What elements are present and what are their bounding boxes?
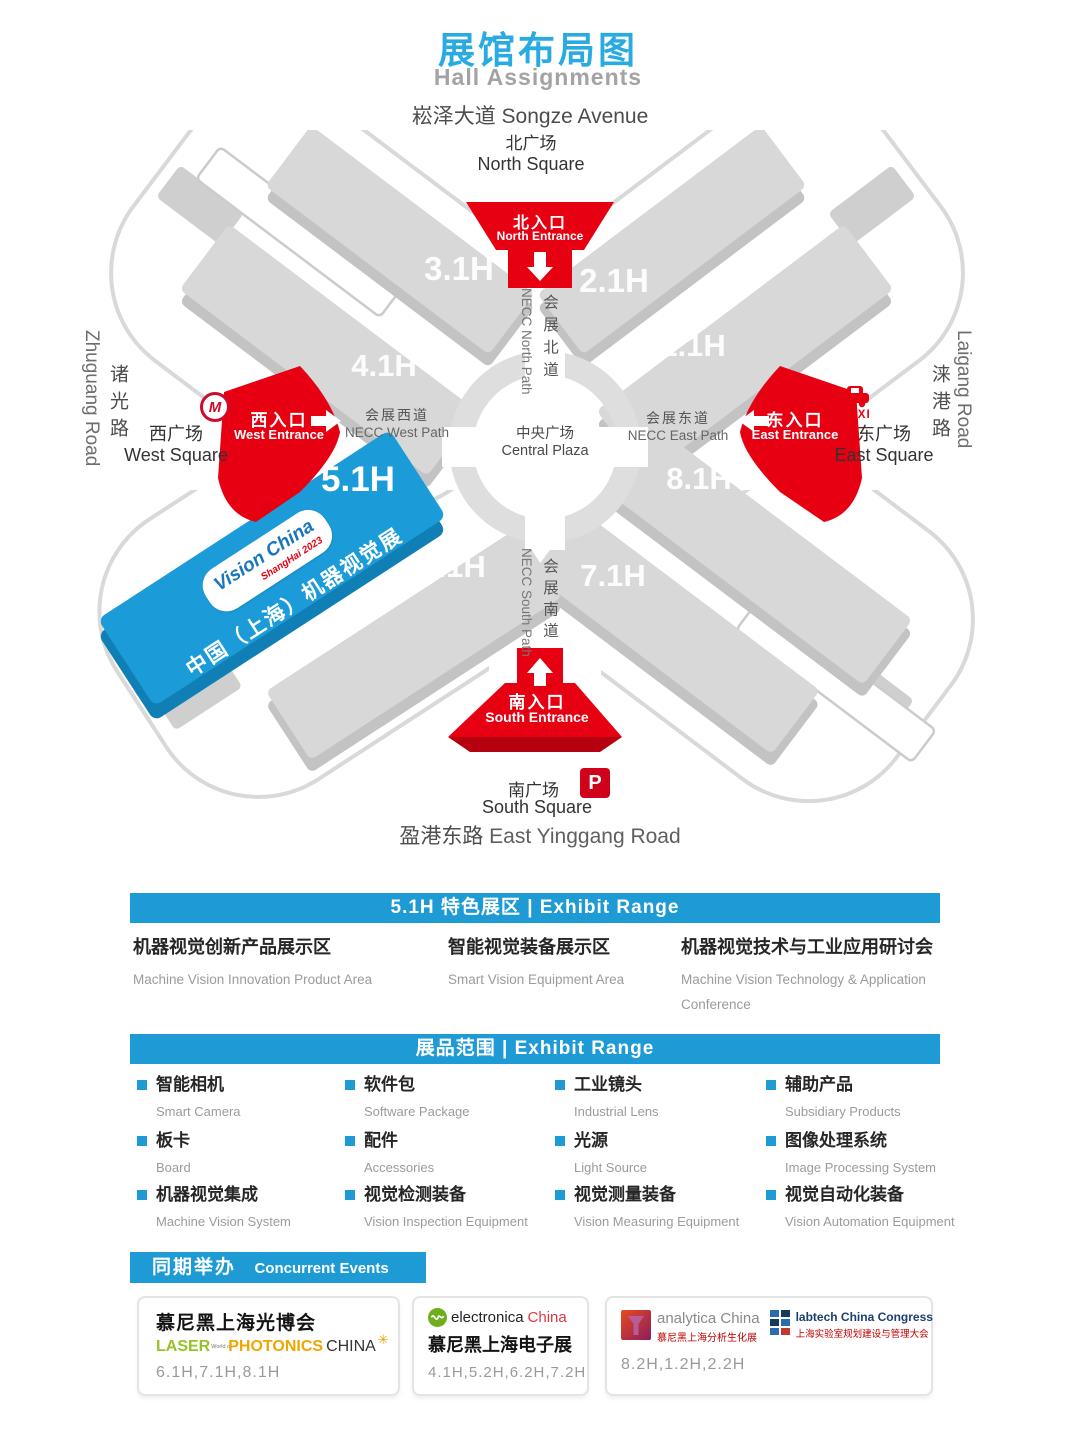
west-square-en: West Square [124, 445, 228, 466]
necc-south-path-zh: 会展南道 [538, 558, 560, 644]
exhibit-item-en: Machine Vision System [156, 1214, 291, 1229]
necc-east-path-label: 会展东道 NECC East Path [628, 410, 729, 444]
east-entrance-en: East Entrance [752, 427, 839, 442]
necc-north-path-en: NECC North Path [519, 288, 534, 420]
featured-item-en: Smart Vision Equipment Area [448, 967, 678, 992]
exhibit-item-en: Vision Automation Equipment [785, 1214, 955, 1229]
logo-world-of: World of [211, 1344, 227, 1350]
hall-label-3-1h: 3.1H [424, 250, 494, 288]
bullet-icon [345, 1190, 355, 1200]
parking-icon: P [580, 768, 610, 798]
logo-china: CHINA [326, 1338, 376, 1356]
central-plaza-label: 中央广场 Central Plaza [501, 426, 588, 460]
event-card-analytica-labtech: analytica China 慕尼黑上海分析生化展 labtech China… [605, 1296, 933, 1396]
event-card-laser-photonics: 慕尼黑上海光博会 LASER World of PHOTONICS CHINA … [137, 1296, 400, 1396]
labtech-logo-icon [770, 1310, 790, 1336]
south-entrance-en: South Entrance [485, 709, 588, 725]
analytica-logo-text: analytica China 慕尼黑上海分析生化展 [657, 1310, 760, 1344]
exhibit-item: 视觉自动化装备 Vision Automation Equipment [766, 1180, 955, 1229]
yinggang-road-label: 盈港东路 East Yinggang Road [399, 820, 680, 850]
featured-item: 机器视觉创新产品展示区 Machine Vision Innovation Pr… [133, 933, 438, 992]
concurrent-banner-en: Concurrent Events [254, 1260, 388, 1277]
necc-east-path-zh: 会展东道 [628, 410, 729, 427]
exhibit-item-en: Subsidiary Products [785, 1104, 901, 1119]
metro-icon-letter: M [209, 399, 222, 416]
songze-avenue-zh: 崧泽大道 [412, 105, 496, 128]
event-title-zh: 慕尼黑上海电子展 [428, 1331, 575, 1357]
exhibit-item: 辅助产品 Subsidiary Products [766, 1070, 901, 1119]
featured-item: 智能视觉装备展示区 Smart Vision Equipment Area [448, 933, 678, 992]
bullet-icon [137, 1136, 147, 1146]
electronica-wave-icon [428, 1308, 447, 1327]
hall-label-2-1h: 2.1H [579, 262, 649, 300]
metro-icon: M [200, 392, 230, 422]
yinggang-road-en: East Yinggang Road [489, 825, 680, 848]
bullet-icon [555, 1080, 565, 1090]
bullet-icon [345, 1136, 355, 1146]
electronica-logo: electronica China [428, 1308, 575, 1327]
exhibit-item-en: Accessories [364, 1160, 434, 1175]
bullet-icon [555, 1190, 565, 1200]
north-square-zh: 北广场 [477, 134, 584, 154]
exhibit-item-en: Board [156, 1160, 191, 1175]
east-square-zh: 东广场 [834, 424, 933, 445]
bullet-icon [345, 1080, 355, 1090]
west-entrance-en: West Entrance [234, 427, 324, 442]
concurrent-events-banner: 同期举办 Concurrent Events [130, 1252, 426, 1283]
page-subtitle: Hall Assignments [434, 64, 642, 91]
bullet-icon [137, 1080, 147, 1090]
laser-photonics-logo: LASER World of PHOTONICS CHINA ✳ [156, 1338, 386, 1356]
featured-item-en: Machine Vision Innovation Product Area [133, 967, 438, 992]
south-square-en: South Square [482, 797, 592, 818]
songze-avenue-label: 崧泽大道 Songze Avenue [412, 100, 649, 130]
exhibit-item: 工业镜头 Industrial Lens [555, 1070, 659, 1119]
bullet-icon [766, 1136, 776, 1146]
featured-item-zh: 机器视觉创新产品展示区 [133, 933, 438, 959]
exhibit-item-zh: 辅助产品 [785, 1075, 853, 1094]
exhibit-section-header: 展品范围 | Exhibit Range [130, 1034, 940, 1064]
exhibit-item: 视觉测量装备 Vision Measuring Equipment [555, 1180, 739, 1229]
exhibit-item-zh: 视觉检测装备 [364, 1185, 466, 1204]
concurrent-banner-zh: 同期举办 [152, 1257, 236, 1278]
exhibit-item: 光源 Light Source [555, 1126, 647, 1175]
exhibit-item-zh: 视觉自动化装备 [785, 1185, 904, 1204]
exhibit-item: 图像处理系统 Image Processing System [766, 1126, 936, 1175]
necc-north-path-zh: 会展北道 [538, 294, 560, 384]
logo-electronica-china: China [528, 1309, 567, 1326]
logo-laser: LASER [156, 1338, 210, 1356]
analytica-labtech-logos: analytica China 慕尼黑上海分析生化展 labtech China… [621, 1310, 921, 1344]
event-halls: 4.1H,5.2H,6.2H,7.2H [428, 1364, 575, 1381]
north-square-en: North Square [477, 154, 584, 174]
central-plaza-zh: 中央广场 [501, 426, 588, 443]
starburst-icon: ✳ [378, 1332, 389, 1348]
west-square-zh: 西广场 [124, 424, 228, 445]
analytica-logo-icon [621, 1310, 651, 1340]
exhibit-item-en: Software Package [364, 1104, 470, 1119]
exhibit-item-zh: 板卡 [156, 1131, 190, 1150]
featured-item-zh: 机器视觉技术与工业应用研讨会 [681, 933, 943, 959]
featured-item-en: Machine Vision Technology & Application … [681, 967, 943, 1017]
event-halls: 6.1H,7.1H,8.1H [156, 1364, 386, 1382]
exhibit-item: 视觉检测装备 Vision Inspection Equipment [345, 1180, 528, 1229]
exhibit-item-en: Industrial Lens [574, 1104, 659, 1119]
event-card-electronica: electronica China 慕尼黑上海电子展 4.1H,5.2H,6.2… [412, 1296, 589, 1396]
exhibit-item: 板卡 Board [137, 1126, 191, 1175]
featured-section-header: 5.1H 特色展区 | Exhibit Range [130, 893, 940, 923]
west-square-label: 西广场 West Square [124, 424, 228, 466]
logo-electronica: electronica [451, 1309, 524, 1326]
exhibit-item-zh: 光源 [574, 1131, 608, 1150]
east-square-label: 东广场 East Square [834, 424, 933, 466]
analytica-sub: 慕尼黑上海分析生化展 [657, 1329, 760, 1344]
exhibit-item: 软件包 Software Package [345, 1070, 470, 1119]
yinggang-road-zh: 盈港东路 [399, 825, 483, 848]
exhibit-item-en: Smart Camera [156, 1104, 241, 1119]
featured-item-zh: 智能视觉装备展示区 [448, 933, 678, 959]
labtech-sub: 上海实验室规划建设与管理大会 [796, 1326, 933, 1340]
featured-item: 机器视觉技术与工业应用研讨会 Machine Vision Technology… [681, 933, 943, 1017]
songze-avenue-en: Songze Avenue [502, 105, 649, 128]
exhibit-item-en: Vision Inspection Equipment [364, 1214, 528, 1229]
logo-photonics: PHOTONICS [228, 1338, 323, 1356]
exhibit-item-zh: 软件包 [364, 1075, 415, 1094]
parking-icon-letter: P [588, 772, 601, 795]
bullet-icon [555, 1136, 565, 1146]
bullet-icon [766, 1190, 776, 1200]
central-plaza-en: Central Plaza [501, 443, 588, 460]
exhibit-item-zh: 视觉测量装备 [574, 1185, 676, 1204]
analytica-name: analytica China [657, 1310, 760, 1327]
bullet-icon [766, 1080, 776, 1090]
exhibit-item-zh: 工业镜头 [574, 1075, 642, 1094]
exhibit-item: 机器视觉集成 Machine Vision System [137, 1180, 291, 1229]
exhibit-item-en: Light Source [574, 1160, 647, 1175]
exhibit-item: 配件 Accessories [345, 1126, 434, 1175]
exhibit-item-zh: 机器视觉集成 [156, 1185, 258, 1204]
necc-east-path-en: NECC East Path [628, 427, 729, 444]
north-square-label: 北广场 North Square [477, 134, 584, 174]
exhibit-item-zh: 智能相机 [156, 1075, 224, 1094]
labtech-name: labtech China Congress [796, 1310, 933, 1324]
exhibit-item-zh: 配件 [364, 1131, 398, 1150]
hall-label-1-1h: 1.1H [660, 328, 725, 364]
taxi-icon [838, 384, 872, 408]
event-halls: 8.2H,1.2H,2.2H [621, 1356, 921, 1374]
exhibit-item-en: Vision Measuring Equipment [574, 1214, 739, 1229]
exhibit-item: 智能相机 Smart Camera [137, 1070, 241, 1119]
labtech-logo-text: labtech China Congress 上海实验室规划建设与管理大会 [796, 1310, 933, 1340]
necc-south-path-en: NECC South Path [519, 548, 534, 680]
laigang-road-en: Laigang Road [952, 330, 974, 482]
necc-west-path-zh: 会展西道 [345, 407, 449, 424]
hall-label-4-1h: 4.1H [351, 348, 416, 384]
north-entrance-en: North Entrance [497, 229, 584, 243]
hall-label-8-1h: 8.1H [666, 461, 731, 497]
taxi-label: TAXI [841, 409, 870, 421]
zhuguang-road-en: Zhuguang Road [80, 330, 102, 482]
exhibit-item-en: Image Processing System [785, 1160, 936, 1175]
hall-label-7-1h: 7.1H [580, 558, 645, 594]
east-square-en: East Square [834, 445, 933, 466]
hall-assignments-poster: 展馆布局图 Hall Assignments 崧泽大道 Songze Avenu… [0, 0, 1070, 1436]
bullet-icon [137, 1190, 147, 1200]
event-title-zh: 慕尼黑上海光博会 [156, 1308, 386, 1335]
exhibit-item-zh: 图像处理系统 [785, 1131, 887, 1150]
